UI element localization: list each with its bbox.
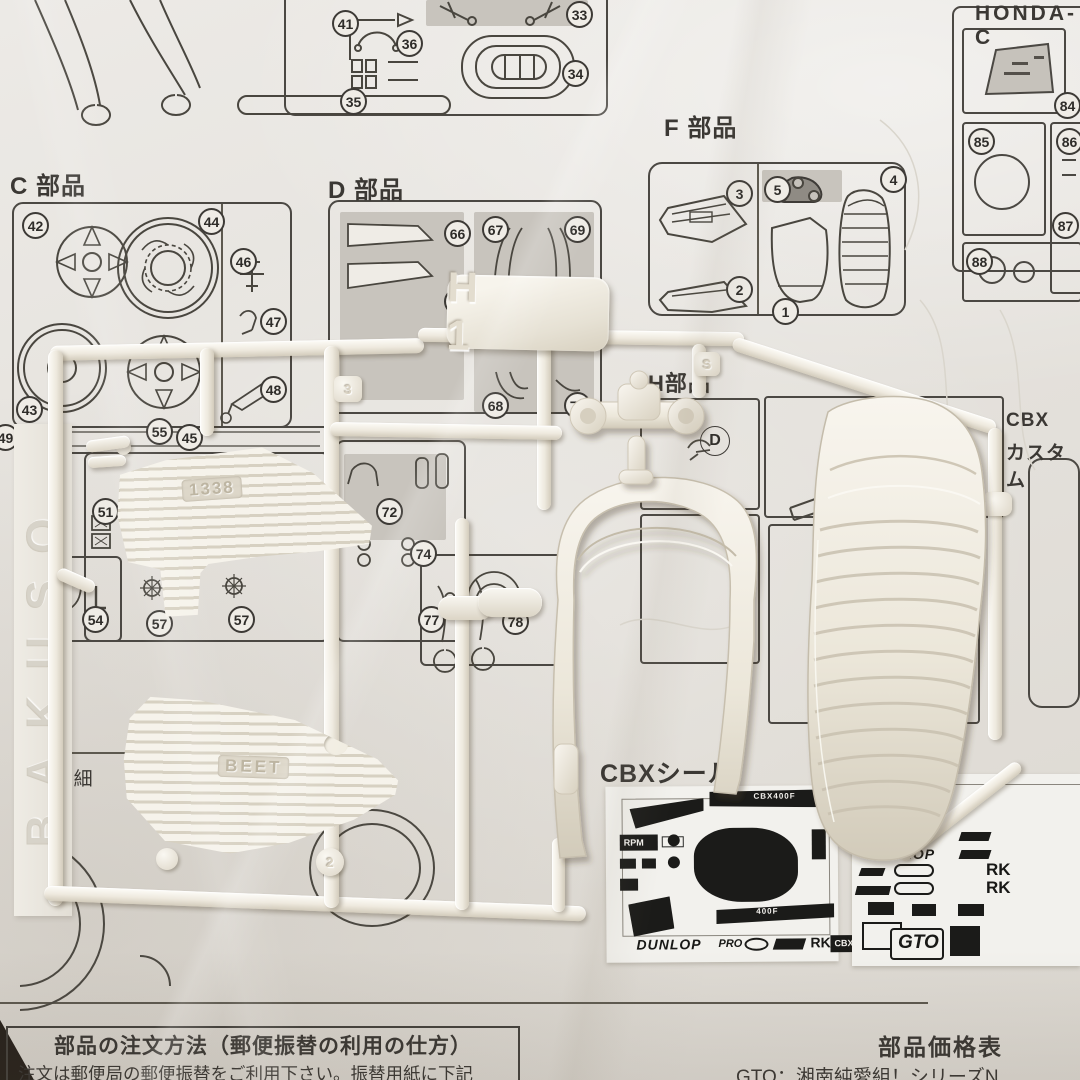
seat-part — [808, 397, 986, 861]
runner-id-text: H 1 — [446, 263, 610, 362]
triple-clamp-part — [570, 371, 704, 484]
runner-id-tag: H 1 — [446, 274, 610, 351]
model-kit-photo: HONDA-C C 部品 D 部品 F 部品 H部品 CBX カスタム CBXシ… — [0, 0, 1080, 1080]
front-fender-part — [553, 477, 757, 858]
side-cover-1338-text: 1338 — [181, 476, 242, 502]
side-cover-beet-text: BEET — [218, 754, 290, 778]
